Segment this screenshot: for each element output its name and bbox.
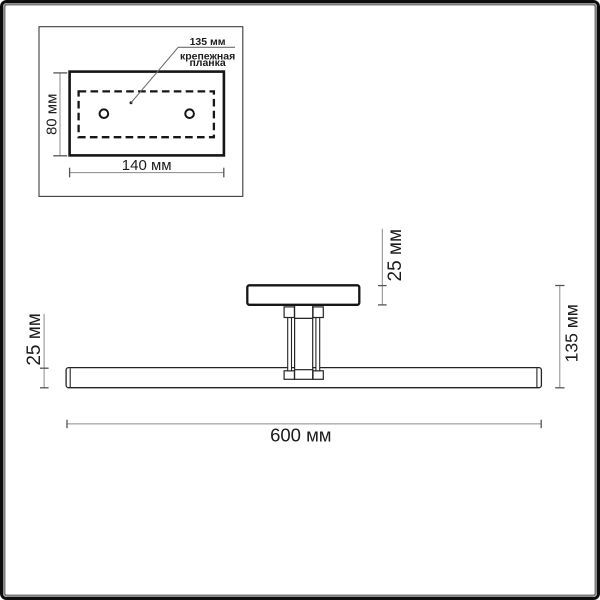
svg-text:80 мм: 80 мм	[44, 94, 61, 135]
svg-text:135 мм: 135 мм	[190, 36, 226, 48]
svg-text:25 мм: 25 мм	[385, 229, 406, 282]
svg-text:140 мм: 140 мм	[122, 157, 172, 174]
svg-text:планка: планка	[189, 57, 225, 69]
svg-text:600 мм: 600 мм	[270, 425, 331, 446]
svg-text:135 мм: 135 мм	[562, 304, 582, 362]
svg-text:25 мм: 25 мм	[24, 313, 45, 366]
